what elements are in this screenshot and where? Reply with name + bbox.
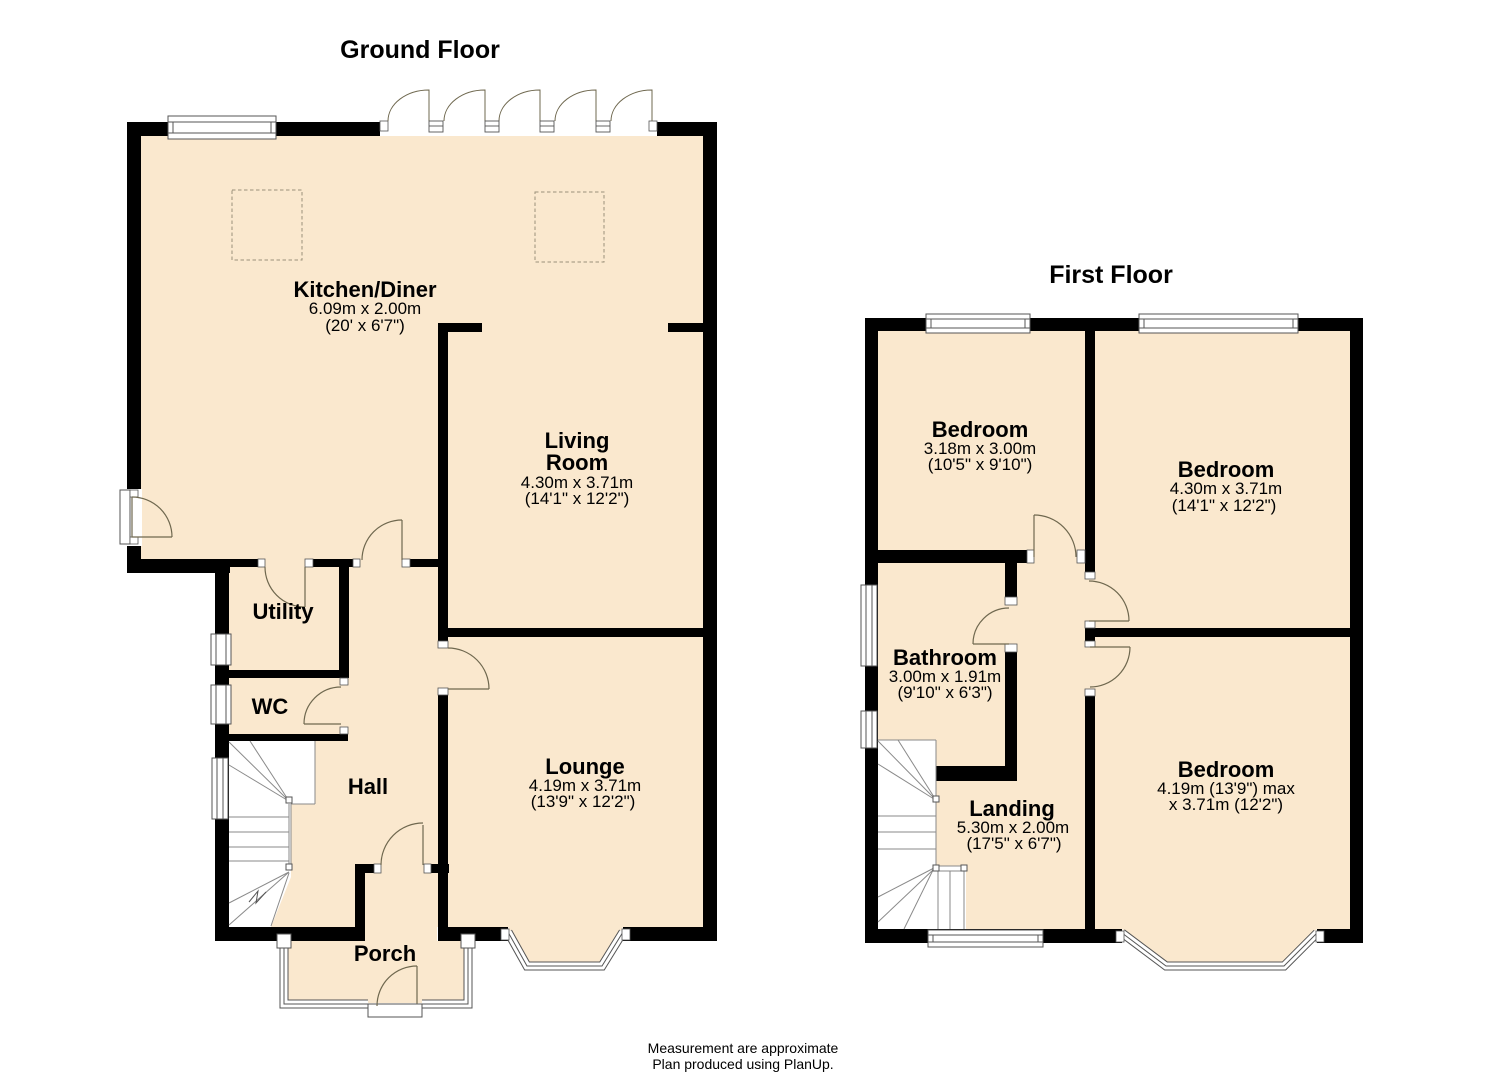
svg-text:WC: WC xyxy=(252,694,289,719)
svg-text:First Floor: First Floor xyxy=(1049,261,1173,289)
svg-text:Porch: Porch xyxy=(354,941,416,966)
svg-text:(14'1" x 12'2"): (14'1" x 12'2") xyxy=(1172,496,1277,515)
svg-text:x 3.71m (12'2"): x 3.71m (12'2") xyxy=(1169,795,1283,814)
svg-text:(10'5" x 9'10"): (10'5" x 9'10") xyxy=(928,455,1033,474)
svg-text:Ground Floor: Ground Floor xyxy=(340,36,500,64)
svg-text:(14'1" x 12'2"): (14'1" x 12'2") xyxy=(525,489,630,508)
svg-text:(20' x 6'7"): (20' x 6'7") xyxy=(325,316,405,335)
svg-text:(13'9" x 12'2"): (13'9" x 12'2") xyxy=(531,792,636,811)
svg-text:(9'10" x 6'3"): (9'10" x 6'3") xyxy=(897,683,992,702)
svg-text:(17'5" x 6'7"): (17'5" x 6'7") xyxy=(966,834,1061,853)
svg-text:Measurement are approximate: Measurement are approximate xyxy=(648,1040,839,1056)
svg-text:Utility: Utility xyxy=(252,599,314,624)
svg-text:Room: Room xyxy=(546,450,608,475)
svg-text:Hall: Hall xyxy=(348,774,388,799)
svg-text:Plan produced using PlanUp.: Plan produced using PlanUp. xyxy=(652,1056,833,1072)
